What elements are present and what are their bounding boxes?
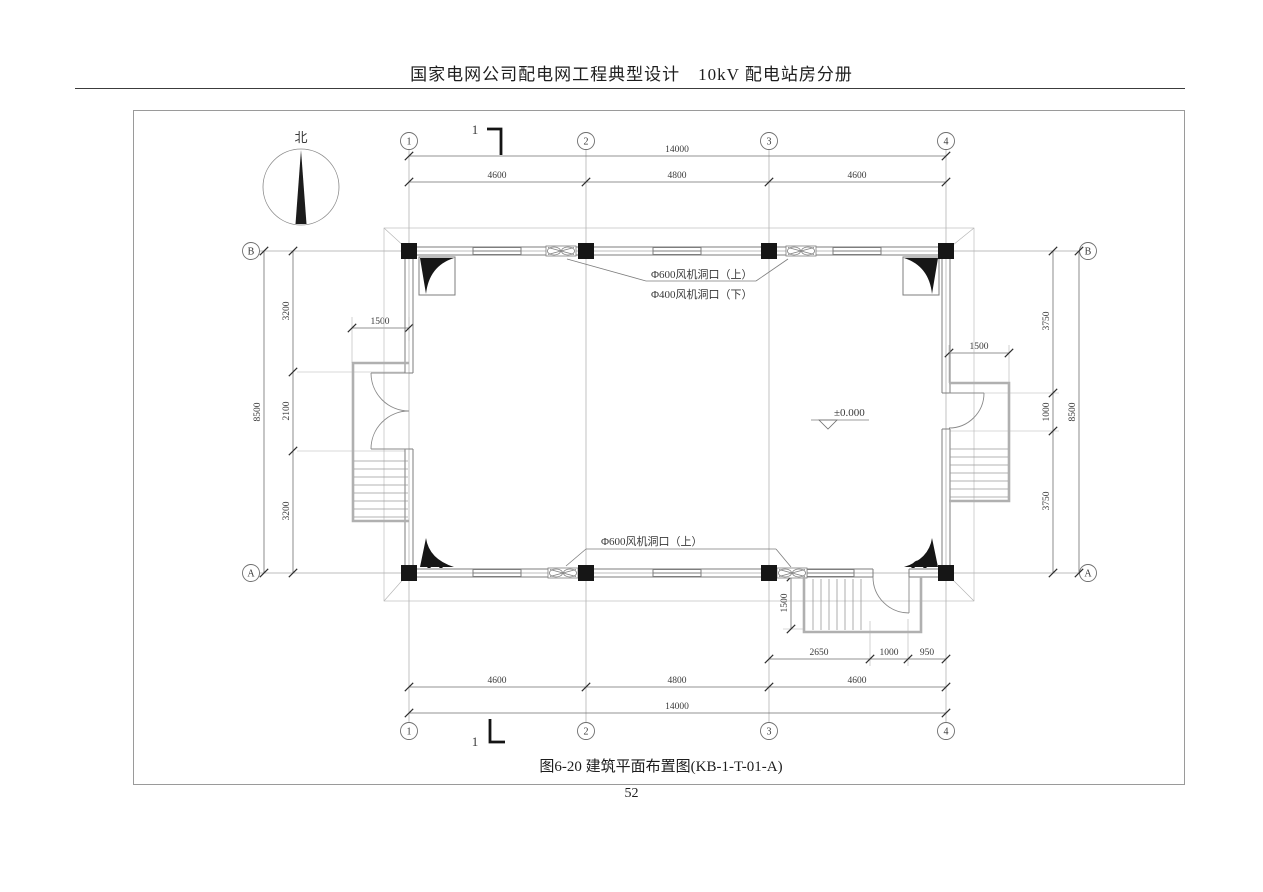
right-entrance <box>949 383 1009 501</box>
svg-text:2: 2 <box>584 137 589 148</box>
dim-bottom-seg3: 4600 <box>848 676 867 686</box>
dim-bottom-seg2: 4800 <box>668 676 687 686</box>
dim-bottom-total: 14000 <box>665 702 689 712</box>
dim-left-seg1: 3200 <box>282 301 292 320</box>
dim-left-platform: 1500 <box>371 317 390 327</box>
right-door <box>949 393 984 428</box>
left-stairs <box>354 461 408 517</box>
drawing-frame: 1 2 3 4 1 <box>133 110 1185 785</box>
bottom-stairs <box>813 579 861 630</box>
north-compass: 北 <box>263 130 339 225</box>
svg-text:1: 1 <box>407 137 412 148</box>
grid-bubble-col2-bottom: 2 <box>578 723 595 740</box>
svg-text:1: 1 <box>407 727 412 738</box>
grid-bubble-col3-top: 3 <box>761 133 778 150</box>
dim-top-seg2: 4800 <box>668 171 687 181</box>
grid-bubble-col1-top: 1 <box>401 133 418 150</box>
document-header-title: 国家电网公司配电网工程典型设计 10kV 配电站房分册 <box>0 60 1263 85</box>
grid-axes: 1 2 3 4 1 <box>243 133 1097 740</box>
floor-plan-drawing: 1 2 3 4 1 <box>134 111 1186 786</box>
dim-right-platform: 1500 <box>970 342 989 352</box>
dimensions: 14000 4600 4800 4600 4600 4800 4600 1400… <box>253 145 1083 717</box>
dim-stair-seg3: 950 <box>920 648 935 658</box>
document-page: 国家电网公司配电网工程典型设计 10kV 配电站房分册 1 <box>0 0 1263 892</box>
north-label: 北 <box>294 130 307 145</box>
dim-top-total: 14000 <box>665 145 689 155</box>
grid-bubble-rowB-left: B <box>243 243 260 260</box>
dim-right-seg2: 1000 <box>1042 402 1052 421</box>
dim-left-total: 8500 <box>253 402 263 421</box>
fan-icon <box>546 246 576 256</box>
svg-text:±0.000: ±0.000 <box>834 407 865 419</box>
dim-right-total: 8500 <box>1068 402 1078 421</box>
section-marker-top: 1 <box>472 122 501 155</box>
header-rule <box>75 88 1185 89</box>
grid-bubble-rowA-right: A <box>1080 565 1097 582</box>
annotations: Φ600风机洞口（上） Φ400风机洞口（下） Φ600风机洞口（上） ±0.0… <box>566 259 869 567</box>
svg-text:A: A <box>1084 569 1092 580</box>
grid-bubble-col2-top: 2 <box>578 133 595 150</box>
grid-bubble-rowB-right: B <box>1080 243 1097 260</box>
dim-right-seg3: 3750 <box>1042 491 1052 510</box>
svg-text:4: 4 <box>944 137 949 148</box>
right-stairs <box>950 449 1008 497</box>
svg-text:1: 1 <box>472 122 479 137</box>
svg-text:3: 3 <box>767 137 772 148</box>
level-marker: ±0.000 <box>811 407 869 429</box>
grid-bubble-col3-bottom: 3 <box>761 723 778 740</box>
svg-text:2: 2 <box>584 727 589 738</box>
bottom-door <box>873 577 909 613</box>
bottom-entrance <box>804 577 921 632</box>
dim-top-seg3: 4600 <box>848 171 867 181</box>
svg-text:4: 4 <box>944 727 949 738</box>
dim-bottom-seg1: 4600 <box>488 676 507 686</box>
dim-top-seg1: 4600 <box>488 171 507 181</box>
figure-caption: 图6-20 建筑平面布置图(KB-1-T-01-A) <box>539 758 782 775</box>
fan-annotation-bottom: Φ600风机洞口（上） <box>566 534 791 567</box>
dim-stair-seg1: 2650 <box>810 648 829 658</box>
svg-text:B: B <box>248 247 255 258</box>
page-number: 52 <box>0 786 1263 802</box>
fan-icon <box>777 568 807 578</box>
double-door <box>371 373 409 449</box>
dim-left-seg2: 2100 <box>282 401 292 420</box>
dim-stair-seg2: 1000 <box>880 648 899 658</box>
fan-icon <box>548 568 578 578</box>
svg-text:Φ600风机洞口（上）: Φ600风机洞口（上） <box>601 534 703 548</box>
svg-text:Φ600风机洞口（上）: Φ600风机洞口（上） <box>651 267 753 281</box>
left-entrance <box>353 363 409 521</box>
grid-bubble-col4-top: 4 <box>938 133 955 150</box>
fan-icon <box>786 246 816 256</box>
section-marker-bottom: 1 <box>472 719 505 749</box>
north-needle-icon <box>296 150 307 224</box>
svg-text:1: 1 <box>472 734 479 749</box>
dim-right-seg1: 3750 <box>1042 311 1052 330</box>
section-markers: 1 1 <box>472 122 505 749</box>
svg-text:B: B <box>1085 247 1092 258</box>
svg-text:Φ400风机洞口（下）: Φ400风机洞口（下） <box>651 287 753 301</box>
level-triangle-icon <box>819 420 837 429</box>
svg-text:3: 3 <box>767 727 772 738</box>
fan-annotation-top: Φ600风机洞口（上） Φ400风机洞口（下） <box>567 259 788 301</box>
dim-bottom-platform: 1500 <box>780 593 790 612</box>
grid-bubble-rowA-left: A <box>243 565 260 582</box>
grid-bubble-col4-bottom: 4 <box>938 723 955 740</box>
grid-bubble-col1-bottom: 1 <box>401 723 418 740</box>
svg-text:A: A <box>247 569 255 580</box>
dim-left-seg3: 3200 <box>282 501 292 520</box>
